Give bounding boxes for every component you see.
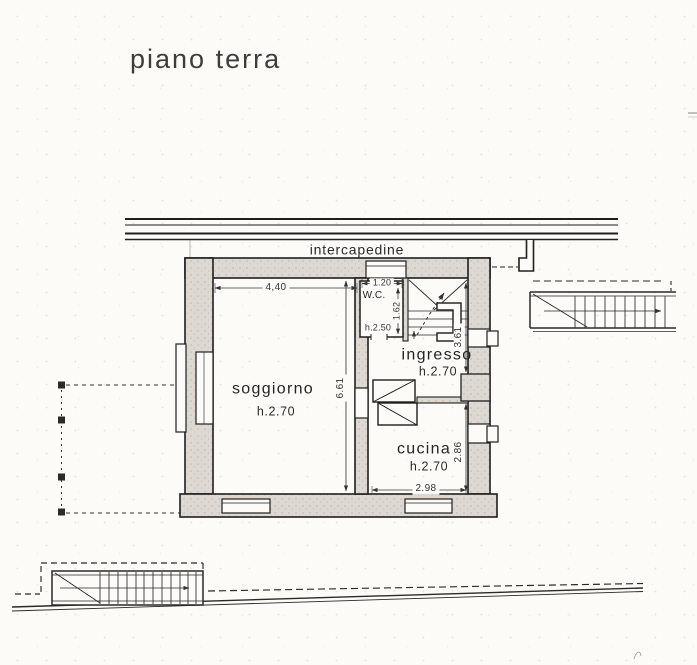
room-height-ingresso: h.2.70 [419, 365, 457, 378]
room-height-wc: h.2.50 [365, 323, 391, 332]
dim-cucina-width: 2.98 [412, 484, 439, 495]
dim-ingresso-depth: 3.61 [454, 323, 465, 350]
dim-soggiorno-depth: 6.61 [336, 374, 347, 401]
pergola-posts [58, 382, 65, 516]
room-height-soggiorno: h.2.70 [257, 405, 295, 418]
room-height-cucina: h.2.70 [410, 460, 448, 473]
intercapedine-label: intercapedine [310, 243, 404, 258]
external-stair-bottom [15, 563, 203, 605]
pergola-dashed-area [58, 382, 186, 516]
room-label-wc: W.C. [363, 291, 386, 302]
drawing-sheet: piano terra [0, 0, 697, 665]
floor-plan-drawing [0, 0, 697, 665]
external-stair-right [530, 281, 676, 332]
room-label-cucina: cucina [397, 442, 451, 459]
dim-soggiorno-width: 4,40 [262, 283, 289, 294]
flue-blocks [373, 380, 417, 425]
dim-wc-width: 1.20 [370, 278, 394, 287]
room-label-soggiorno: soggiorno [232, 382, 314, 399]
dim-wc-depth: 1.62 [392, 299, 401, 323]
dim-cucina-depth: 2.86 [454, 438, 465, 465]
